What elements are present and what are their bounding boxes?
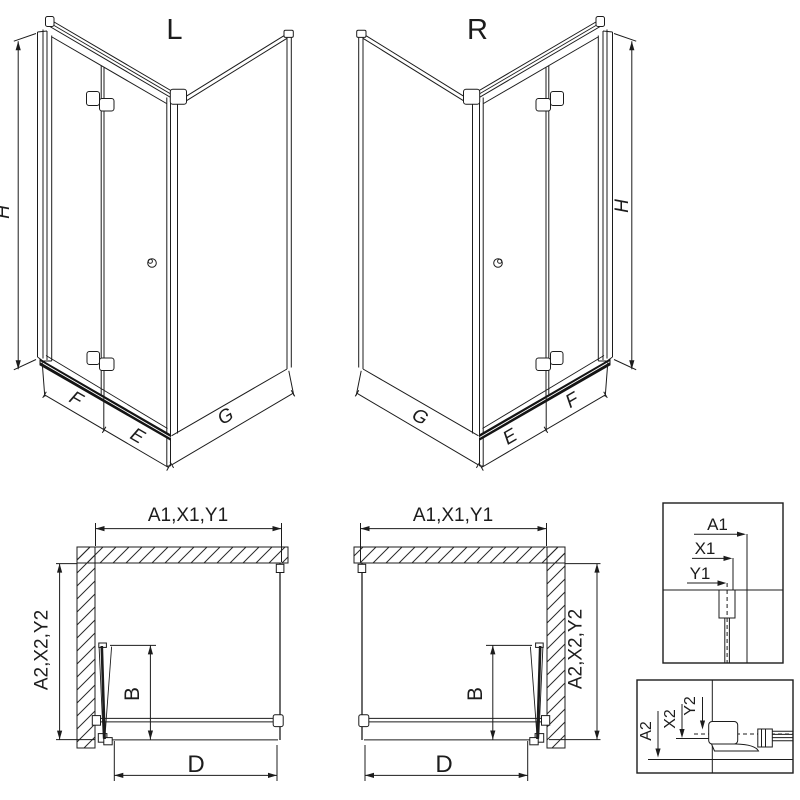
dim-label-f: F bbox=[65, 387, 87, 412]
detail-label-y2: Y2 bbox=[682, 696, 699, 716]
detail-label-a2: A2 bbox=[638, 721, 655, 741]
dim-label-d: D bbox=[187, 751, 204, 778]
technical-drawing-sheet: L H F E G R H F E G A1,X1,Y1 A2,X2,Y2 bbox=[0, 0, 800, 800]
dim-label-a2x2y2: A2,X2,Y2 bbox=[566, 609, 587, 689]
dim-label-a2x2y2: A2,X2,Y2 bbox=[32, 610, 53, 690]
shower-enclosure-diagram: L H F E G R H F E G A1,X1,Y1 A2,X2,Y2 bbox=[0, 0, 800, 800]
view-title-right: R bbox=[467, 14, 488, 46]
detail-label-a1: A1 bbox=[707, 515, 728, 534]
dim-label-d: D bbox=[435, 751, 452, 778]
wall-top-hatched bbox=[354, 547, 565, 563]
detail-label-x1: X1 bbox=[695, 539, 716, 558]
dim-label-g: G bbox=[214, 404, 237, 430]
dim-label-b: B bbox=[464, 687, 487, 701]
dim-label-a1x1y1: A1,X1,Y1 bbox=[148, 505, 228, 526]
dim-label-h: H bbox=[0, 205, 14, 219]
plan-view-left: A1,X1,Y1 A2,X2,Y2 B D bbox=[32, 505, 289, 781]
iso-view-left: L H F E G bbox=[0, 14, 295, 471]
view-title-left: L bbox=[166, 14, 182, 46]
plan-view-right: A1,X1,Y1 A2,X2,Y2 B D bbox=[354, 505, 601, 781]
dim-b bbox=[486, 645, 532, 739]
detail-label-y1: Y1 bbox=[690, 564, 711, 583]
iso-view-right: R H F E G bbox=[355, 14, 636, 471]
dim-label-g: G bbox=[408, 404, 431, 430]
detail-label-x2: X2 bbox=[662, 709, 679, 729]
dim-label-h: H bbox=[612, 199, 633, 213]
detail-box-width: A1 X1 Y1 bbox=[663, 503, 783, 663]
dim-label-a1x1y1: A1,X1,Y1 bbox=[413, 505, 493, 526]
detail-box-depth: A2 X2 Y2 bbox=[637, 680, 793, 773]
wall-top-hatched bbox=[77, 547, 288, 563]
dim-label-b: B bbox=[121, 687, 144, 701]
wall-profile-section bbox=[709, 722, 793, 752]
